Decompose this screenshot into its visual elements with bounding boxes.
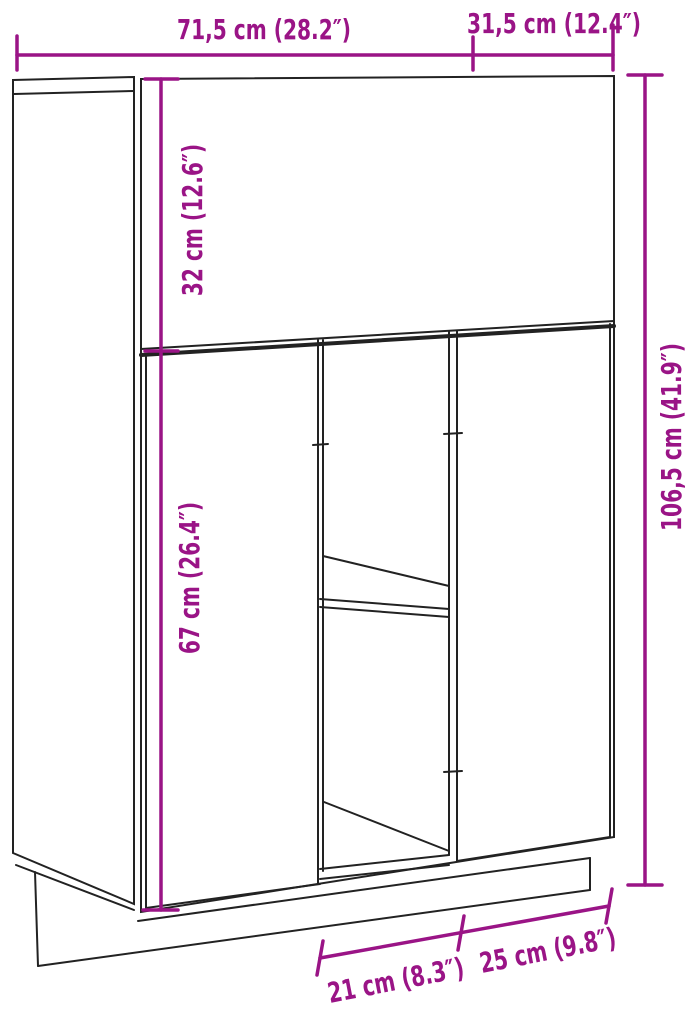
width-dimension-label: 71,5 cm (28.2″) [177,16,351,44]
left-side-panel [13,77,134,910]
depth-dimension-label: 31,5 cm (12.4″) [467,10,641,38]
cabinet-line-drawing [0,0,693,1020]
upper-section-height-label: 32 cm (12.6″) [179,144,207,296]
lower-section-height-label: 67 cm (26.4″) [176,502,204,654]
dimension-diagram: 71,5 cm (28.2″) 31,5 cm (12.4″) 32 cm (1… [0,0,693,1020]
front-carcass [141,76,614,912]
cabinet [13,76,614,966]
total-height-label: 106,5 cm (41.9″) [658,343,686,531]
